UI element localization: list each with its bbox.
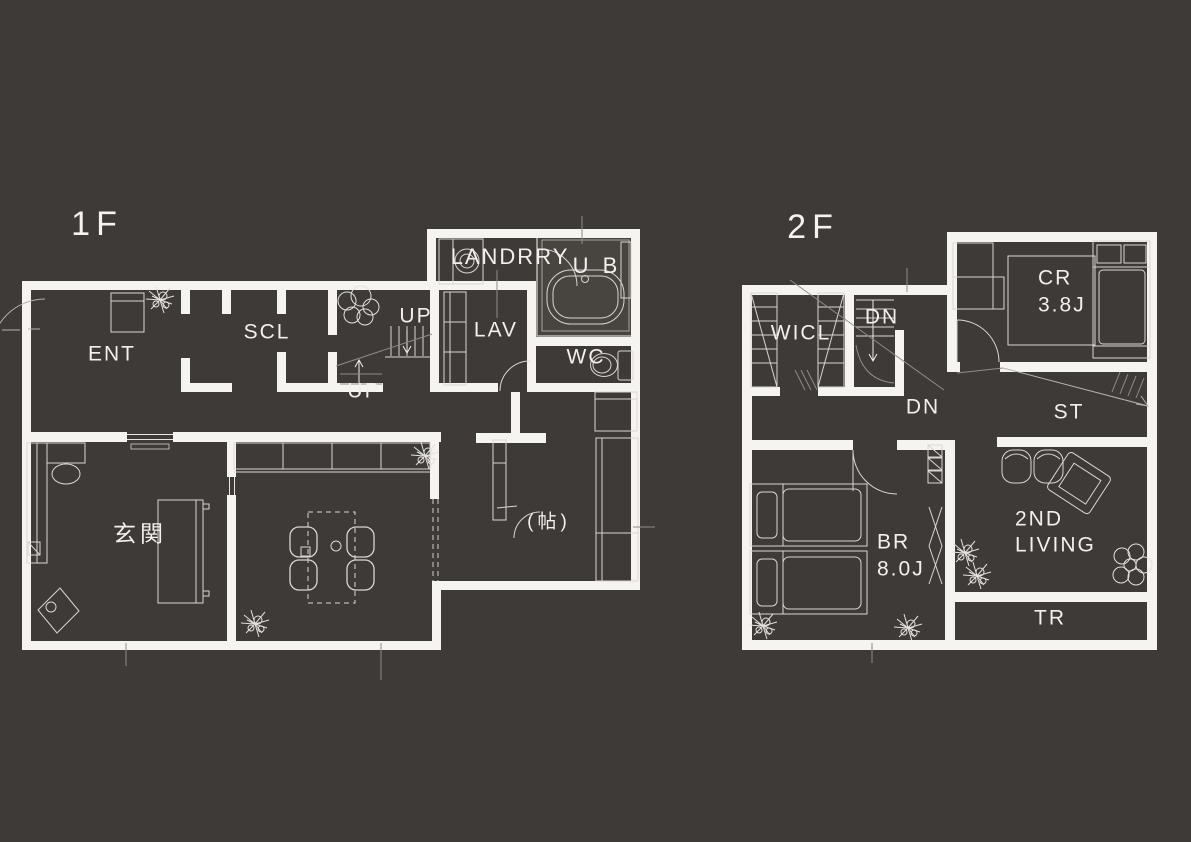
armchair-icons	[1002, 450, 1063, 483]
cr-bed-icon	[1093, 241, 1150, 358]
stairs-up-icon	[336, 326, 432, 366]
floor1-plants	[146, 286, 439, 637]
room-label-lav: LAV	[474, 320, 518, 341]
island-counter-icon	[158, 500, 209, 603]
room-label-genkan: 玄関	[113, 523, 167, 546]
genkan-side-door-lines	[230, 477, 235, 495]
room-label-wicl: WICL	[771, 323, 832, 344]
genkan-door-lines	[127, 435, 173, 450]
kitchen-counter-icon	[234, 443, 430, 472]
desk-icon	[47, 443, 85, 484]
sliding-door-dashed	[433, 499, 438, 581]
cr-desk-icon	[953, 243, 1004, 309]
room-label-cr-size: 3.8J	[1038, 295, 1086, 316]
folding-door-icon	[929, 507, 942, 584]
room-label-up-upper: UP	[399, 306, 432, 327]
room-label-dn-lower: DN	[906, 397, 940, 418]
room-label-br: BR	[877, 532, 910, 553]
room-label-up-lower: UP	[347, 381, 380, 402]
room-label-ent: ENT	[88, 344, 136, 365]
br-door-arc	[853, 450, 897, 494]
room-label-unit-bath: U B	[573, 255, 622, 277]
floorplan-canvas: 1F ENT SCL UP UP LANDRRY U B LAV WC 玄関 (…	[0, 0, 1191, 842]
room-label-st: ST	[1054, 402, 1085, 423]
piano-icon	[38, 588, 79, 633]
room-label-wc: WC	[567, 347, 606, 368]
room-label-cr: CR	[1038, 268, 1072, 289]
room-label-scl: SCL	[244, 322, 291, 343]
st-ladder-lines	[957, 368, 1148, 406]
dining-table-icon	[290, 512, 374, 603]
vanity-icon	[444, 292, 530, 391]
sofa-icon	[1046, 451, 1112, 515]
room-label-living-line1: 2ND	[1015, 509, 1063, 530]
floorplan-drawing	[0, 0, 1191, 842]
room-label-dn-upper: DN	[865, 307, 899, 328]
floor1-title: 1F	[71, 207, 123, 241]
floor2-title: 2F	[787, 210, 839, 244]
room-label-br-size: 8.0J	[877, 559, 925, 580]
cr-door-arc	[957, 320, 999, 362]
floor1-plan	[0, 216, 655, 680]
br-bed-icons	[750, 484, 867, 614]
room-label-tatami: (帖)	[527, 513, 571, 532]
ent-cabinet-icon	[111, 293, 144, 332]
hall-hatch-lines	[795, 370, 817, 390]
floor2-plan	[742, 232, 1157, 663]
room-label-laundry: LANDRRY	[451, 246, 570, 268]
flower-plant-icon	[1113, 544, 1152, 585]
room-label-tr: TR	[1034, 608, 1066, 629]
br-shelf-icons	[928, 445, 942, 483]
plant-cluster-icon	[338, 286, 379, 325]
room-label-living-line2: LIVING	[1015, 535, 1096, 556]
